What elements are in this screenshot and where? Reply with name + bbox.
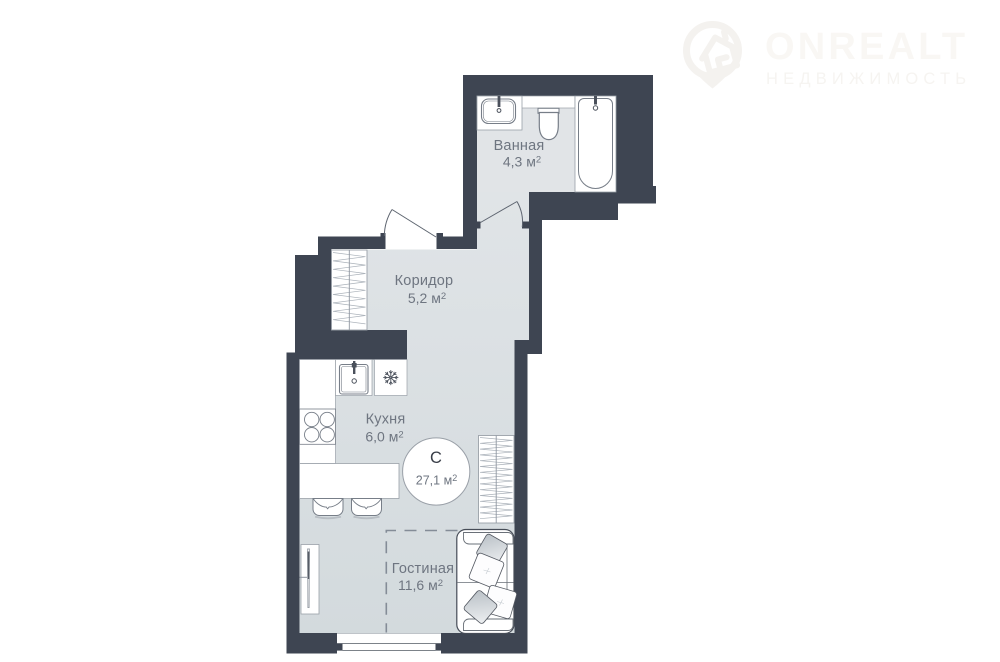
svg-text:5,2 м2: 5,2 м2 xyxy=(408,290,446,306)
svg-text:Коридор: Коридор xyxy=(395,273,454,289)
svg-text:Гостиная: Гостиная xyxy=(392,561,454,577)
svg-text:Ванная: Ванная xyxy=(494,138,545,154)
svg-text:С: С xyxy=(430,449,442,467)
svg-text:6,0 м2: 6,0 м2 xyxy=(365,429,403,445)
svg-text:ONREALT: ONREALT xyxy=(765,26,968,68)
svg-text:НЕДВИЖИМОСТЬ: НЕДВИЖИМОСТЬ xyxy=(766,70,971,88)
svg-text:27,1 м2: 27,1 м2 xyxy=(416,473,457,488)
svg-text:Кухня: Кухня xyxy=(366,412,406,428)
svg-text:4,3 м2: 4,3 м2 xyxy=(503,154,541,170)
svg-text:11,6 м2: 11,6 м2 xyxy=(398,577,443,593)
